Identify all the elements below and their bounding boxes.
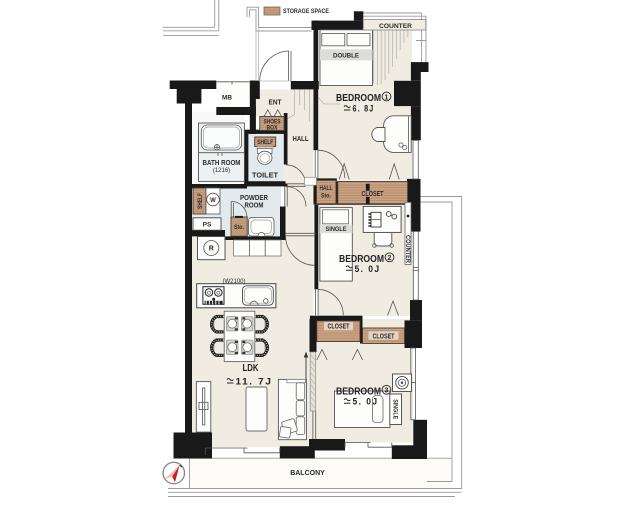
svg-text:6. 8J: 6. 8J <box>353 104 375 114</box>
svg-text:DOUBLE: DOUBLE <box>333 52 360 59</box>
svg-text:R: R <box>209 246 214 253</box>
svg-text:COUNTER: COUNTER <box>404 235 410 264</box>
svg-text:W: W <box>210 198 216 204</box>
svg-text:11. 7J: 11. 7J <box>236 377 273 387</box>
svg-text:BOX: BOX <box>267 125 278 131</box>
svg-text:3: 3 <box>385 388 389 395</box>
svg-text:1: 1 <box>385 94 389 101</box>
svg-text:TOILET: TOILET <box>252 173 279 180</box>
svg-text:MB: MB <box>222 95 232 102</box>
svg-text:CLOSET: CLOSET <box>362 191 385 198</box>
svg-text:ENT: ENT <box>269 99 283 106</box>
svg-text:Sto.: Sto. <box>321 194 331 200</box>
svg-text:SINGLE: SINGLE <box>326 226 348 233</box>
svg-text:POWDER: POWDER <box>240 195 268 202</box>
svg-text:HALL: HALL <box>293 136 310 143</box>
svg-text:Sto.: Sto. <box>234 225 244 231</box>
svg-text:PS: PS <box>203 222 212 229</box>
svg-text:LDK: LDK <box>243 362 259 374</box>
svg-text:5. 0J: 5. 0J <box>355 264 381 274</box>
svg-text:BATH ROOM: BATH ROOM <box>203 160 241 167</box>
svg-text:(W2100): (W2100) <box>222 279 245 285</box>
svg-text:COUNTER: COUNTER <box>379 23 412 30</box>
svg-text:CLOSET: CLOSET <box>328 324 351 331</box>
svg-text:BEDROOM: BEDROOM <box>336 385 381 397</box>
svg-text:SINGLE: SINGLE <box>391 399 397 419</box>
svg-text:CLOSET: CLOSET <box>373 334 396 341</box>
svg-text:STORAGE SPACE: STORAGE SPACE <box>283 8 330 15</box>
svg-text:2: 2 <box>388 255 392 262</box>
svg-text:5. 0J: 5. 0J <box>353 397 379 407</box>
svg-text:SHELF: SHELF <box>257 140 273 146</box>
svg-text:HALL: HALL <box>320 186 333 192</box>
svg-text:BALCONY: BALCONY <box>290 470 325 477</box>
svg-text:SHELF: SHELF <box>198 193 204 209</box>
svg-text:ROOM: ROOM <box>245 203 264 210</box>
svg-text:(1216): (1216) <box>213 168 230 174</box>
svg-text:BEDROOM: BEDROOM <box>336 92 381 104</box>
